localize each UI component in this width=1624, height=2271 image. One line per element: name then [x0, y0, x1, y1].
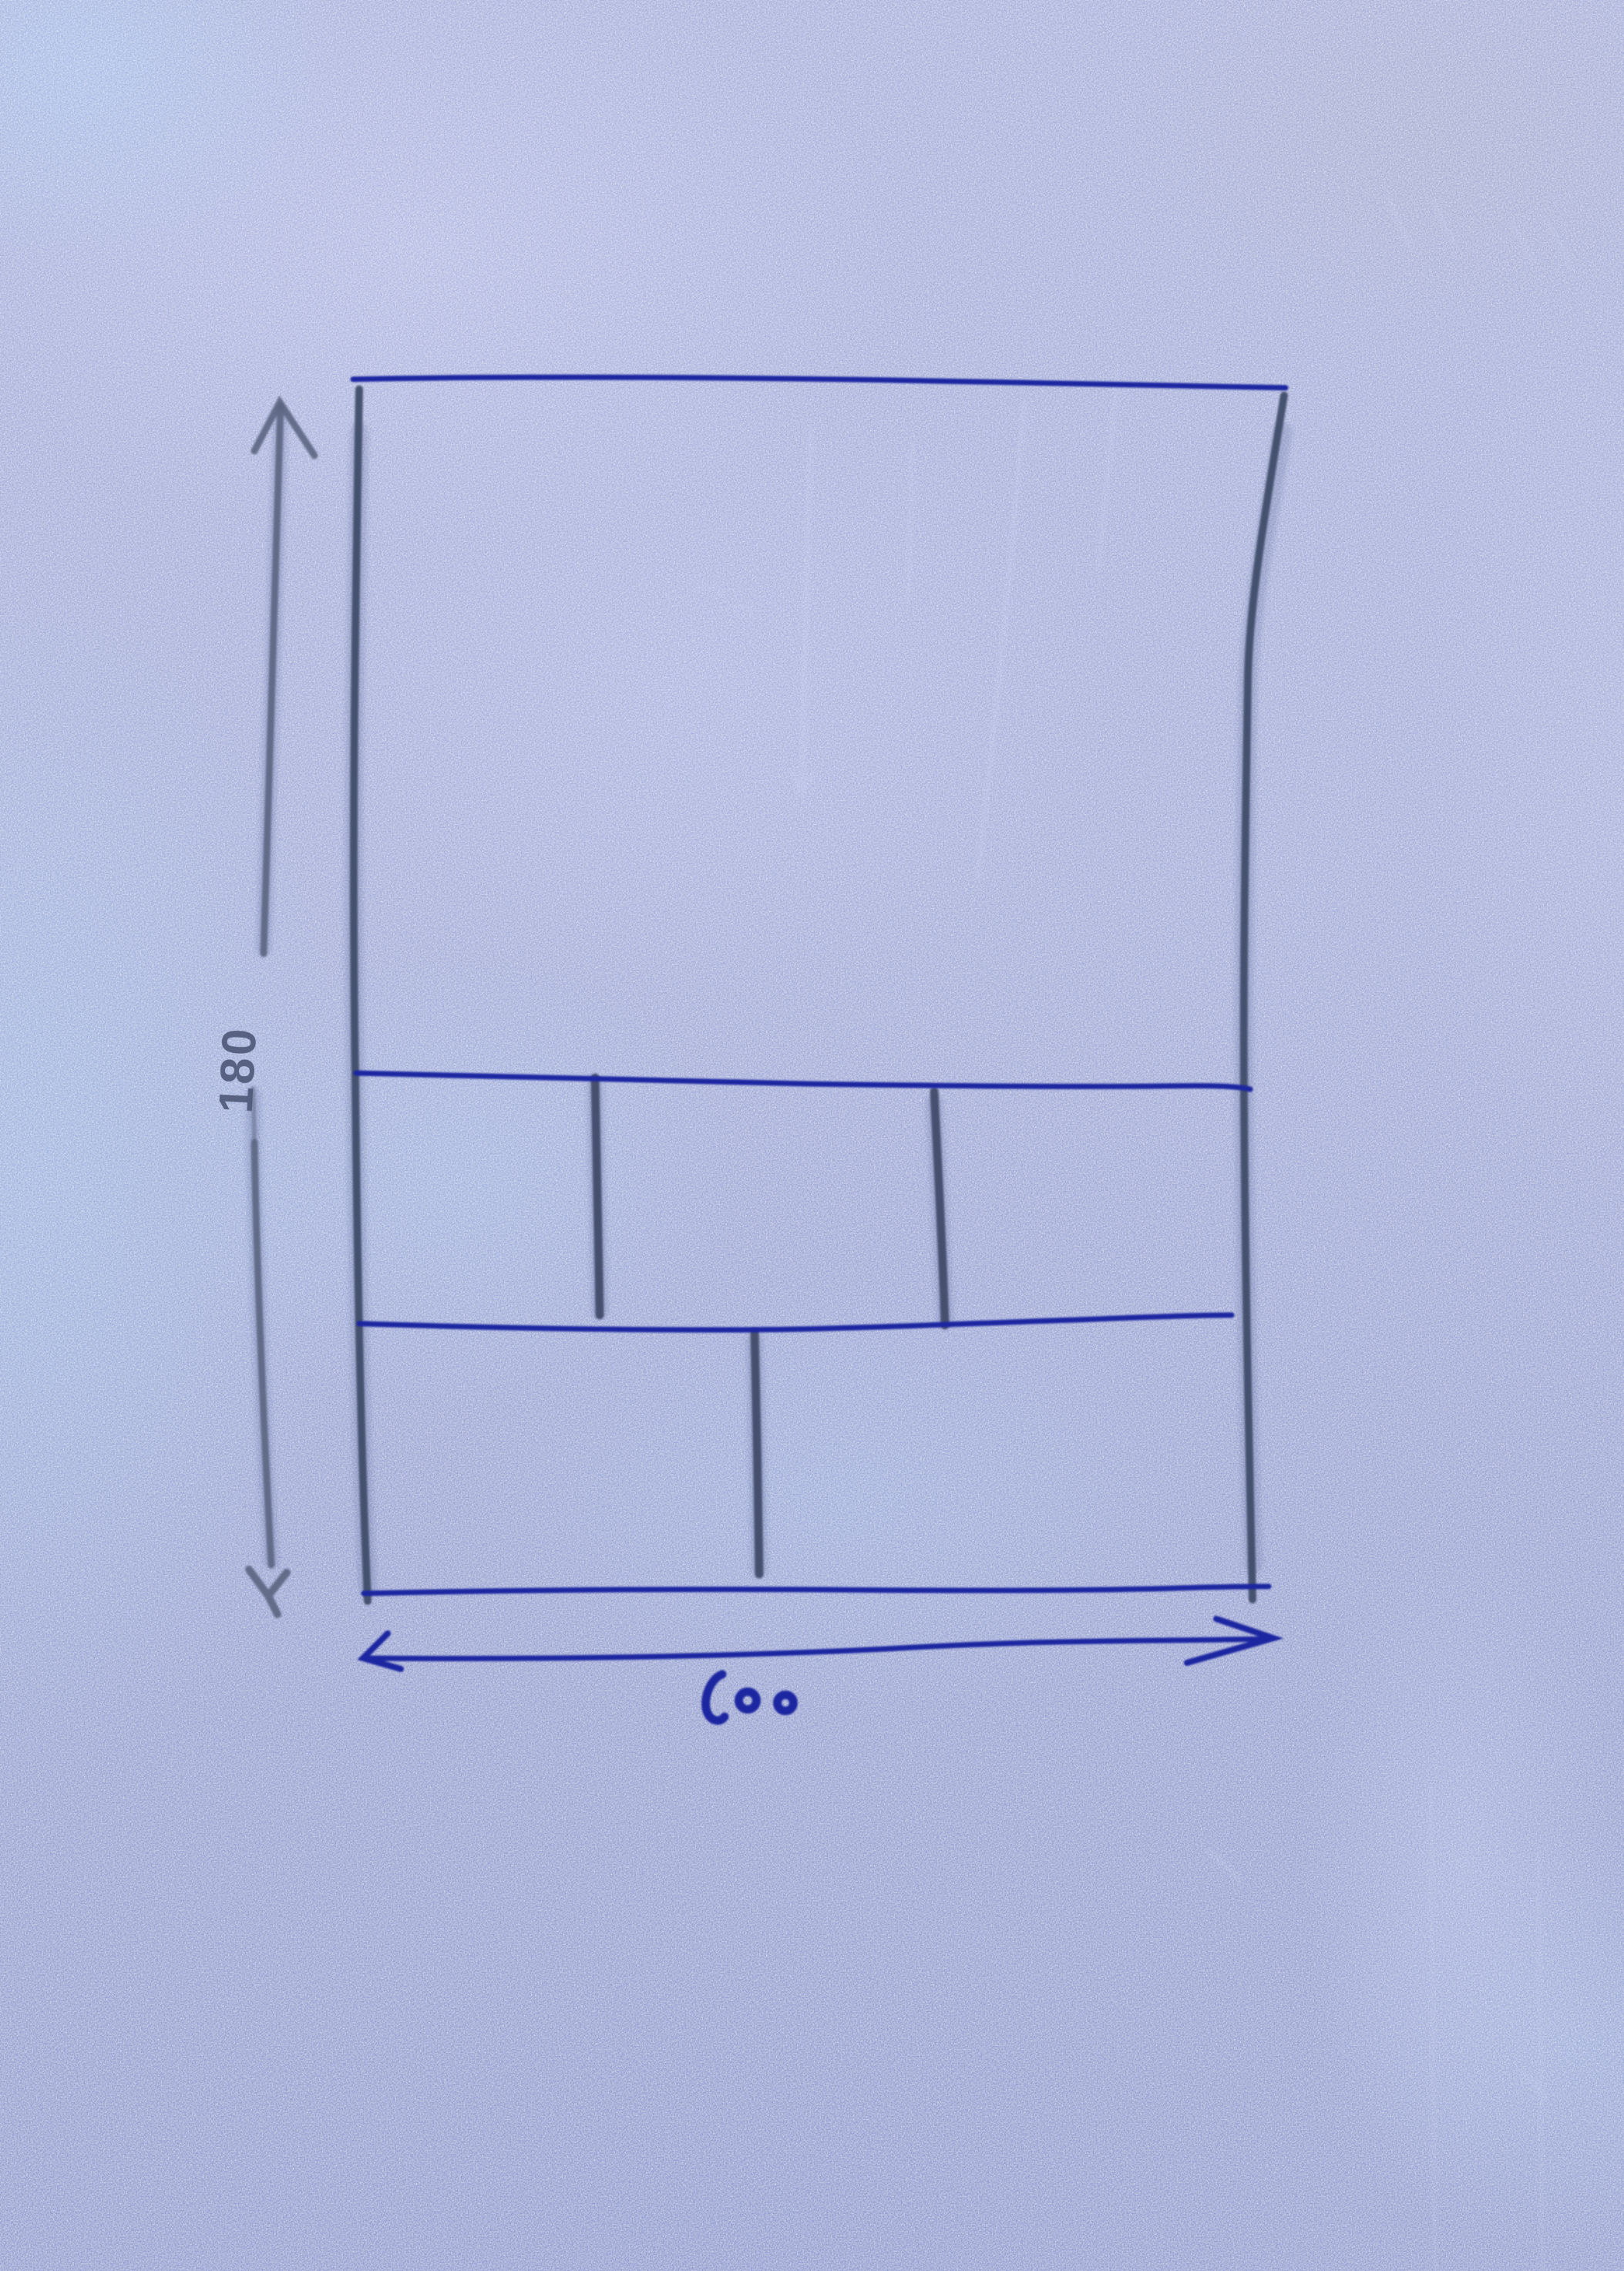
svg-text:180: 180	[209, 1025, 267, 1115]
